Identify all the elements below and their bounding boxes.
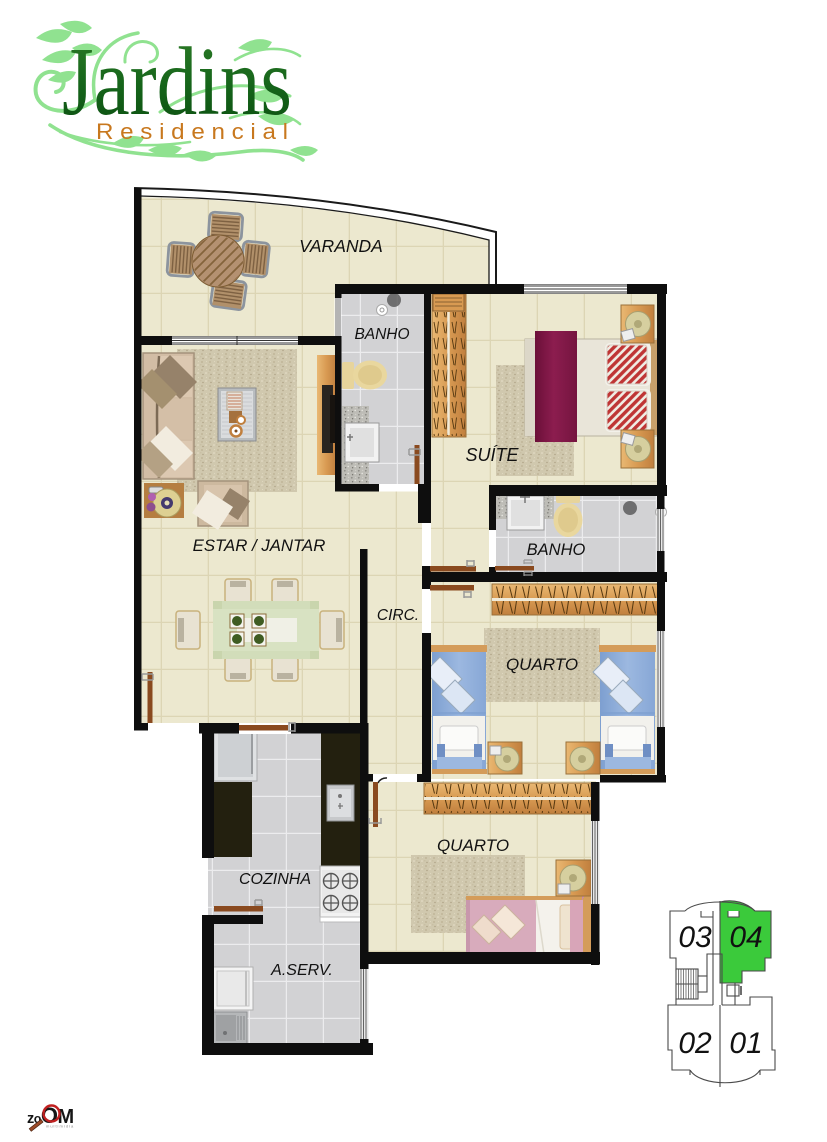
- svg-text:A.SERV.: A.SERV.: [270, 962, 333, 979]
- svg-text:QUARTO: QUARTO: [506, 655, 578, 674]
- svg-text:COZINHA: COZINHA: [239, 871, 311, 888]
- svg-text:ESTAR / JANTAR: ESTAR / JANTAR: [193, 536, 326, 555]
- svg-text:CIRC.: CIRC.: [377, 607, 419, 624]
- svg-text:SUÍTE: SUÍTE: [465, 445, 519, 465]
- svg-text:03: 03: [678, 921, 712, 954]
- svg-text:BANHO: BANHO: [527, 541, 586, 559]
- svg-text:multimídia: multimídia: [46, 1124, 74, 1129]
- svg-text:VARANDA: VARANDA: [299, 236, 383, 256]
- svg-text:R e s i d e n c i a l: R e s i d e n c i a l: [96, 119, 288, 144]
- svg-text:01: 01: [729, 1027, 762, 1060]
- svg-text:04: 04: [729, 921, 762, 954]
- svg-text:02: 02: [678, 1027, 712, 1060]
- svg-text:QUARTO: QUARTO: [437, 836, 509, 855]
- svg-text:BANHO: BANHO: [354, 326, 409, 343]
